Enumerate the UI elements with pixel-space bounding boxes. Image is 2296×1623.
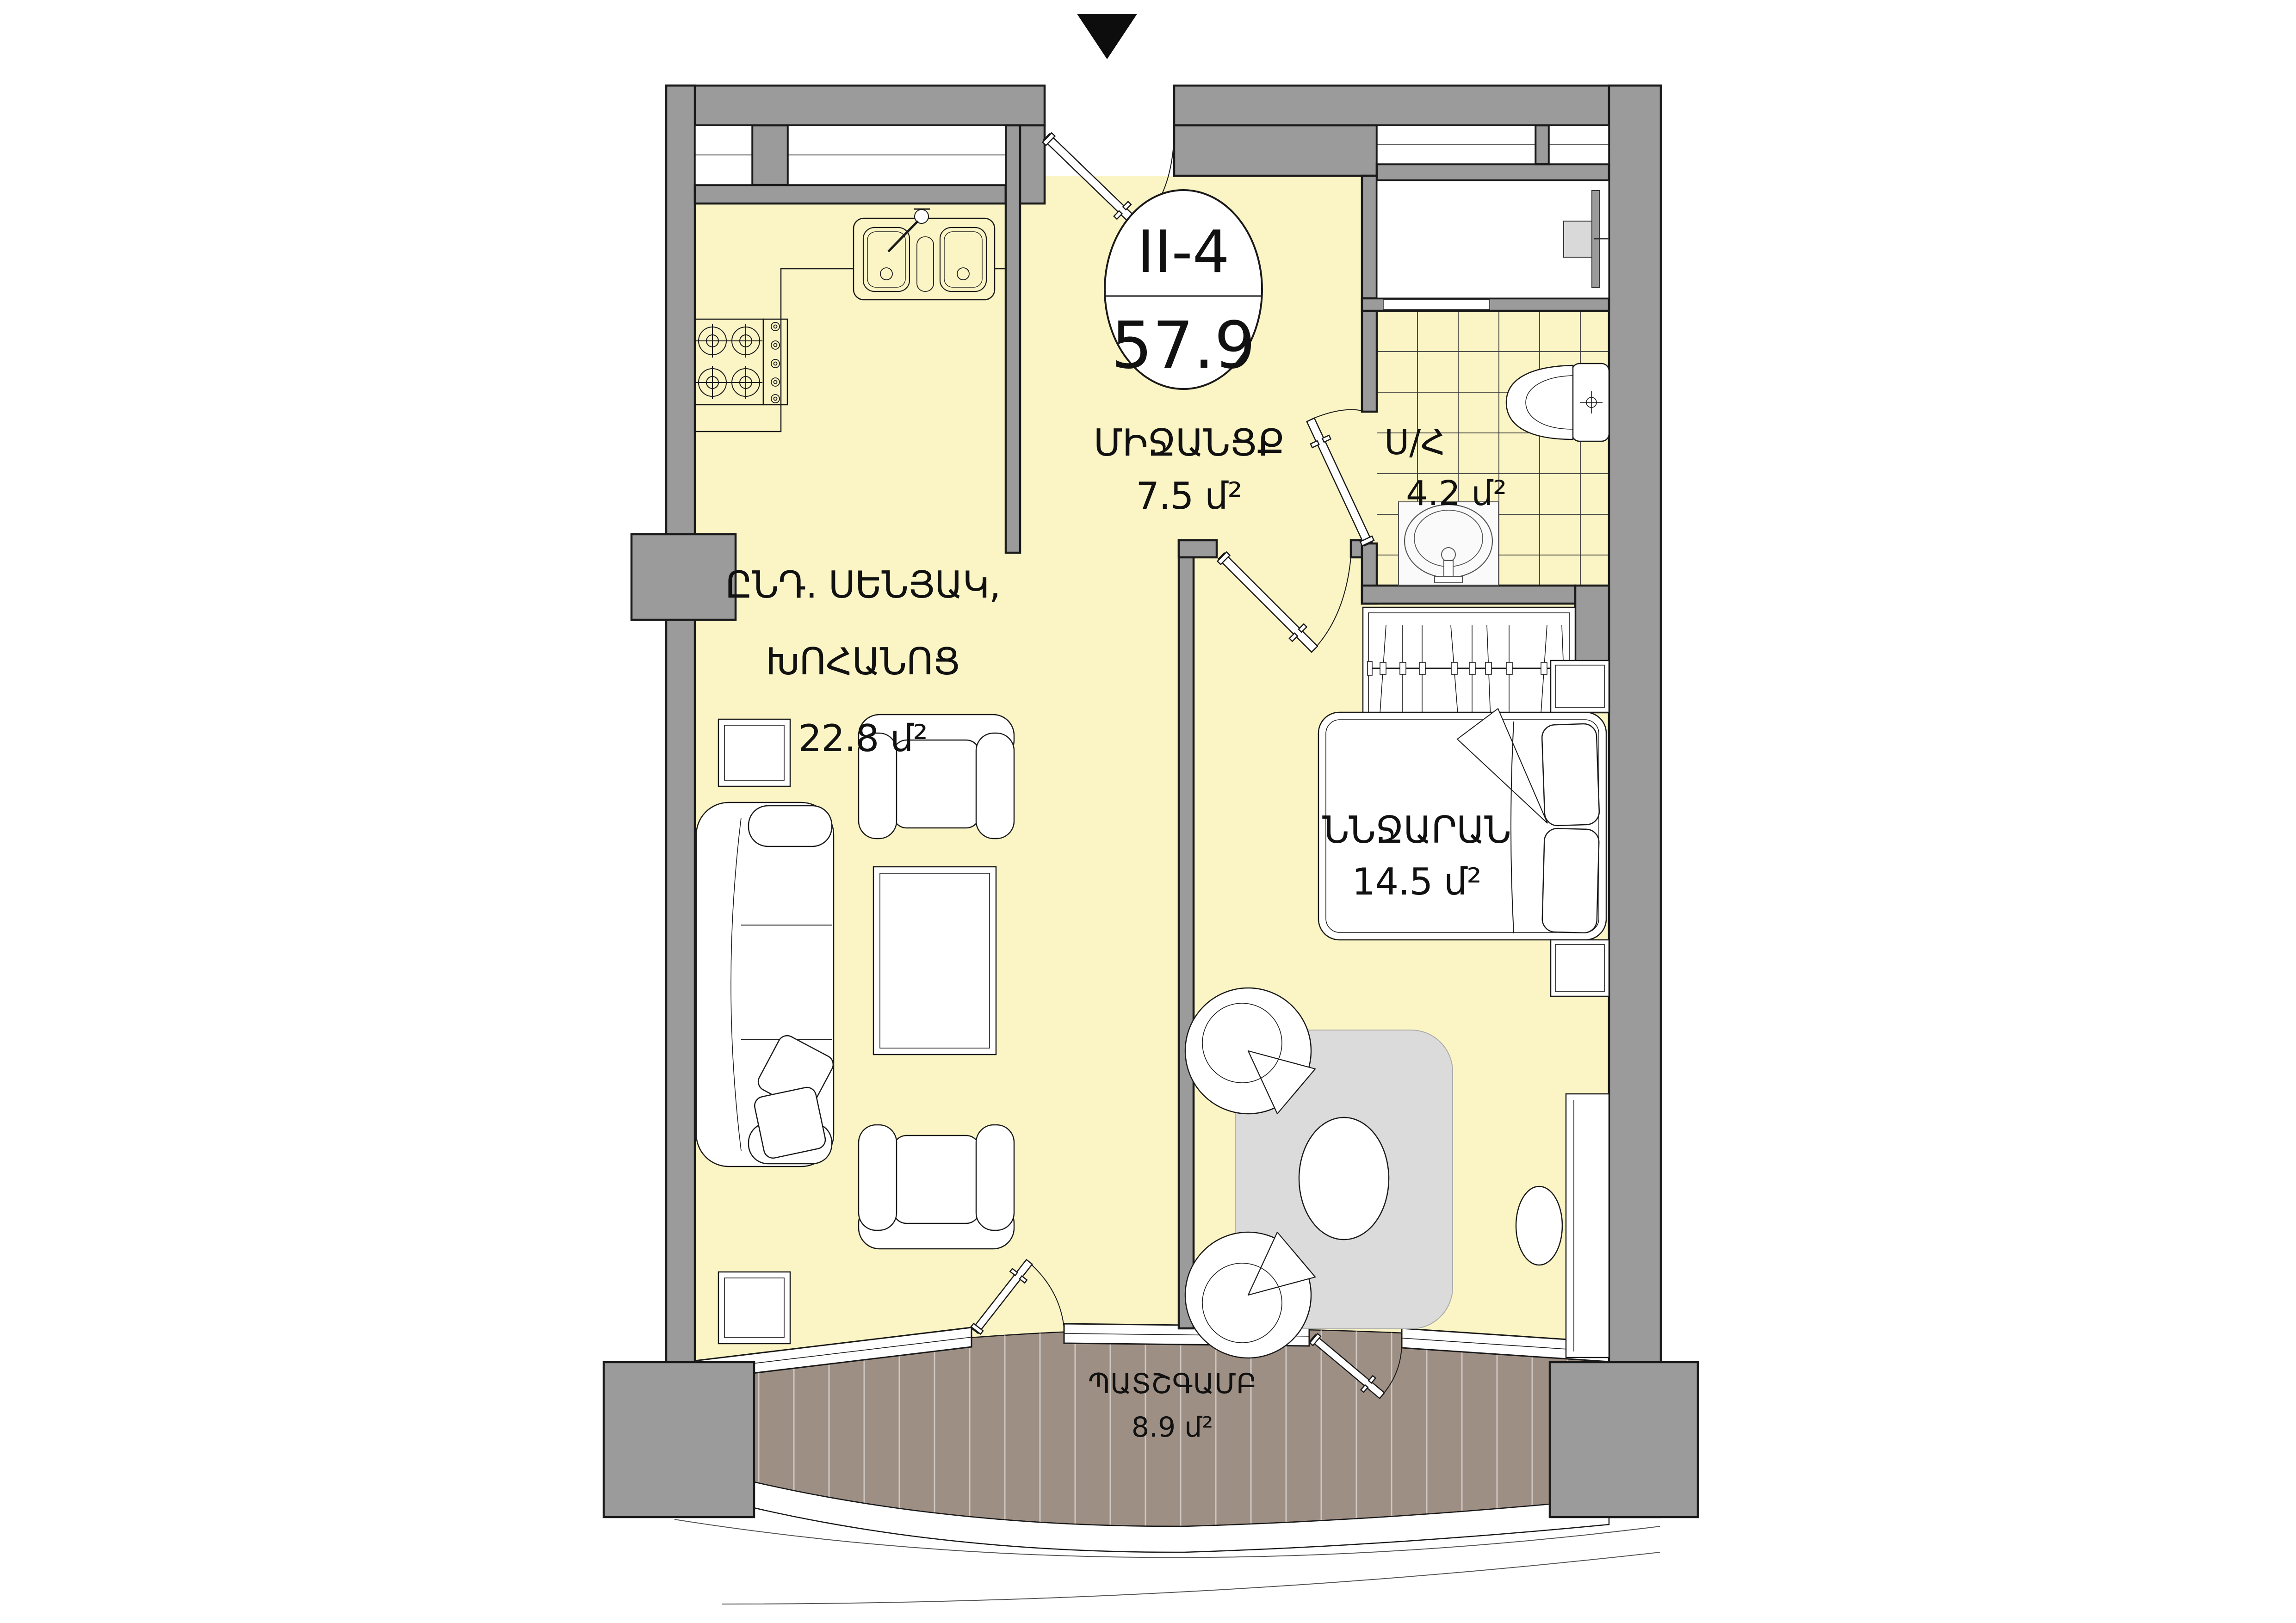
floor-plan-canvas: II-4 57.9 ՄԻՋԱՆՑՔ 7.5 մ² Ս/Հ 4.2 մ² ԸՆԴ.… <box>0 0 2296 1623</box>
armchair-bottom-icon <box>859 1125 1014 1249</box>
bedroom-top-wall-left <box>1179 540 1217 557</box>
left-mid-column <box>631 534 736 620</box>
living-kitchen-name-line1: ԸՆԴ. ՍԵՆՅԱԿ, <box>725 563 1001 606</box>
balcony-area: 8.9 մ² <box>1132 1411 1213 1444</box>
wardrobe <box>1363 607 1575 730</box>
bottom-left-column <box>604 1362 754 1517</box>
utility-shaft-room <box>1377 180 1609 298</box>
kitchen-window-mullion <box>752 125 788 185</box>
side-table-top <box>718 719 790 786</box>
side-table-bottom <box>718 1272 790 1344</box>
round-table <box>1299 1117 1389 1240</box>
bed-pillow-1 <box>1541 723 1600 826</box>
left-wall <box>666 86 695 1365</box>
living-kitchen-area: 22.8 մ² <box>798 717 927 760</box>
living-bedroom-divider <box>1179 540 1194 1328</box>
nightstand-top <box>1551 660 1609 712</box>
right-wall <box>1609 86 1661 1517</box>
top-wall-left <box>666 86 1045 125</box>
unit-badge: II-4 57.9 <box>1105 190 1262 389</box>
coffee-table <box>873 867 996 1055</box>
sofa-icon <box>696 802 836 1166</box>
bedroom-name: ՆՆՋԱՐԱՆ <box>1322 808 1511 852</box>
kitchen-window-lower-band <box>695 185 1006 204</box>
washbasin-icon <box>1399 502 1498 585</box>
kitchen-sink-icon <box>854 209 995 300</box>
vent-unit-box <box>1564 221 1594 257</box>
balcony-name: ՊԱՏՇԳԱՄԲ <box>1088 1368 1256 1400</box>
bathroom-bottom-wall <box>1362 586 1575 604</box>
bathroom-area: 4.2 մ² <box>1406 474 1507 513</box>
bottom-right-column <box>1550 1362 1698 1517</box>
bedroom-area: 14.5 մ² <box>1352 860 1481 903</box>
bed-pillow-2 <box>1542 828 1599 933</box>
living-kitchen-name-line2: ԽՈՀԱՆՈՑ <box>766 640 960 683</box>
sofa-pillow-2 <box>753 1086 827 1160</box>
unit-total-area: 57.9 <box>1111 308 1256 383</box>
top-wall-right <box>1174 86 1661 125</box>
shaft-hatch-opening <box>1383 300 1490 309</box>
dresser <box>1566 1094 1609 1358</box>
hallway-bathroom-wall-upper <box>1362 176 1377 412</box>
unit-code: II-4 <box>1137 218 1230 286</box>
nightstand-bottom <box>1551 940 1609 996</box>
hallway-area: 7.5 մ² <box>1136 475 1242 518</box>
stool <box>1516 1186 1562 1265</box>
bathroom-name: Ս/Հ <box>1384 423 1445 463</box>
hallway-name: ՄԻՋԱՆՑՔ <box>1094 421 1285 464</box>
wall-chunk-right-of-entrance <box>1174 125 1377 176</box>
kitchen-hallway-partition <box>1006 125 1020 553</box>
shaft-window-mullion <box>1535 125 1549 164</box>
floor-plan-page: II-4 57.9 ՄԻՋԱՆՑՔ 7.5 մ² Ս/Հ 4.2 մ² ԸՆԴ.… <box>0 0 2296 1623</box>
shaft-window-lower-band <box>1377 164 1609 180</box>
